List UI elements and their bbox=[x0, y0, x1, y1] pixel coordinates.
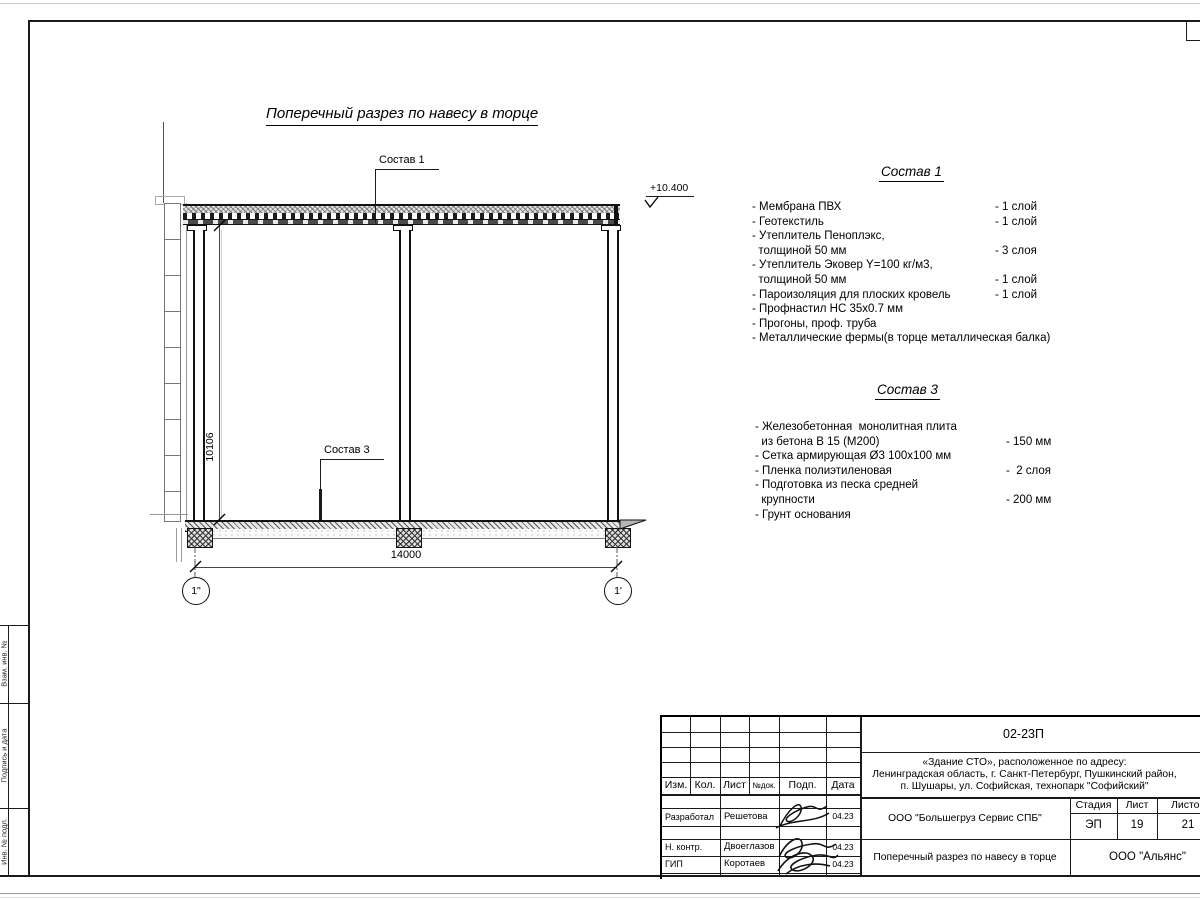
stamp-object-line3: п. Шушары, ул. Софийская, технопарк "Соф… bbox=[900, 781, 1148, 793]
drawing-title: Поперечный разрез по навесу в торце bbox=[266, 105, 538, 126]
sostav3-list: - Железобетонная монолитная плита из бет… bbox=[755, 420, 1095, 522]
callout-roof-underline bbox=[375, 169, 439, 170]
stamp-stage-value: ЭП bbox=[1070, 813, 1117, 839]
wall-edge-line bbox=[186, 203, 187, 520]
paper-edge-top bbox=[0, 3, 1200, 4]
spec-item-name: - Сетка армирующая Ø3 100x100 мм bbox=[755, 450, 951, 462]
wall-below-grade-1 bbox=[176, 528, 177, 562]
spec-item-name: - Геотекстиль bbox=[752, 216, 824, 228]
elevation-value: +10.400 bbox=[650, 182, 688, 194]
column-right bbox=[607, 230, 619, 520]
dim-height-text: 10106 bbox=[204, 425, 218, 469]
stamp-col-dok: №док. bbox=[749, 777, 779, 794]
spec-item-qty: - 1 слой bbox=[995, 200, 1037, 215]
side-label-vzam: Взам. инв. № bbox=[0, 629, 9, 699]
footing-right bbox=[605, 528, 631, 548]
frame-top bbox=[28, 20, 1200, 22]
stamp-doc-number: 02-23П bbox=[860, 717, 1187, 752]
corner-box-bottom bbox=[1186, 40, 1200, 41]
stamp-sheet-label: Лист bbox=[1117, 797, 1157, 813]
spec-item-qty: - 3 слоя bbox=[995, 244, 1037, 259]
side-label-inv: Инв. № подл. bbox=[0, 807, 9, 877]
spec-item-name: - Железобетонная монолитная плита bbox=[755, 421, 957, 433]
spec-row: из бетона В 15 (М200)- 150 мм bbox=[755, 435, 1095, 450]
spec-row: - Геотекстиль- 1 слой bbox=[752, 215, 1092, 230]
spec-item-name: крупности bbox=[755, 494, 815, 506]
axis-right-label: 1' bbox=[614, 585, 622, 597]
spec-row: - Грунт основания bbox=[755, 508, 1095, 523]
stamp-line bbox=[779, 717, 780, 877]
stamp-line bbox=[662, 826, 860, 827]
stamp-date-developer: 04.23 bbox=[826, 808, 860, 826]
stamp-sheet-title: Поперечный разрез по навесу в торце bbox=[860, 839, 1070, 877]
wall-below-grade-2 bbox=[181, 528, 182, 562]
spec-item-name: толщиной 50 мм bbox=[752, 245, 846, 257]
spec-item-name: - Профнастил НС 35x0.7 мм bbox=[752, 303, 903, 315]
spec-item-qty: - 1 слой bbox=[995, 273, 1037, 288]
stamp-role-ncontrol: Н. контр. bbox=[665, 839, 720, 856]
stamp-name-ncontrol: Двоеглазов bbox=[724, 839, 779, 856]
spec-row: толщиной 50 мм- 1 слой bbox=[752, 273, 1092, 288]
stamp-object-line1: «Здание СТО», расположенное по адресу: bbox=[922, 757, 1126, 769]
stamp-sheet-value: 19 bbox=[1117, 813, 1157, 839]
spec-row: - Утеплитель Пеноплэкс, bbox=[752, 229, 1092, 244]
dim-width-text: 14000 bbox=[368, 549, 444, 561]
axis-bubble-left: 1" bbox=[182, 577, 210, 605]
spec-item-qty: - 2 слоя bbox=[1006, 464, 1051, 479]
spec-row: - Пароизоляция для плоских кровель- 1 сл… bbox=[752, 288, 1092, 303]
stamp-col-kol: Кол. bbox=[690, 777, 720, 794]
paper-edge-bottom bbox=[0, 893, 1200, 894]
spec-row: - Металлические фермы(в торце металличес… bbox=[752, 331, 1092, 346]
stamp-date-ncontrol: 04.23 bbox=[826, 839, 860, 856]
callout-slab-leader-thick bbox=[319, 489, 322, 520]
margin-divider-2 bbox=[0, 703, 28, 704]
footing-middle bbox=[396, 528, 422, 548]
spec-item-name: - Утеплитель Пеноплэкс, bbox=[752, 230, 885, 242]
elevation-arrow-icon bbox=[645, 197, 658, 207]
sostav3-heading: Состав 3 bbox=[875, 382, 940, 400]
spec-row: - Профнастил НС 35x0.7 мм bbox=[752, 302, 1092, 317]
spec-item-name: - Металлические фермы(в торце металличес… bbox=[752, 332, 1050, 344]
column-middle bbox=[399, 230, 411, 520]
spec-row: - Железобетонная монолитная плита bbox=[755, 420, 1095, 435]
spec-item-name: из бетона В 15 (М200) bbox=[755, 436, 880, 448]
side-label-podpis: Подпись и дата bbox=[0, 716, 9, 796]
column-left bbox=[193, 230, 205, 520]
stamp-sheets-value: 21 bbox=[1157, 813, 1200, 839]
stamp-col-list: Лист bbox=[720, 777, 749, 794]
sostav1-heading: Состав 1 bbox=[879, 164, 944, 182]
axis-left-label: 1" bbox=[191, 585, 201, 597]
dim-width-line bbox=[195, 567, 617, 568]
stamp-line bbox=[662, 732, 860, 733]
stamp-line bbox=[662, 747, 860, 748]
spec-row: толщиной 50 мм- 3 слоя bbox=[752, 244, 1092, 259]
stamp-line bbox=[662, 873, 860, 874]
spec-row: - Сетка армирующая Ø3 100x100 мм bbox=[755, 449, 1095, 464]
spec-row: - Подготовка из песка средней bbox=[755, 478, 1095, 493]
margin-divider-1 bbox=[0, 625, 28, 626]
spec-item-name: - Грунт основания bbox=[755, 509, 851, 521]
spec-item-name: - Мембрана ПВХ bbox=[752, 201, 841, 213]
stamp-object-address: «Здание СТО», расположенное по адресу: Л… bbox=[862, 753, 1187, 797]
spec-item-qty: - 1 слой bbox=[995, 215, 1037, 230]
drawing-sheet: Взам. инв. № Подпись и дата Инв. № подл.… bbox=[0, 0, 1200, 900]
spec-row: крупности- 200 мм bbox=[755, 493, 1095, 508]
roof-deck-dashes bbox=[183, 213, 620, 220]
stamp-col-izm: Изм. bbox=[662, 777, 690, 794]
stamp-line bbox=[662, 794, 860, 796]
stamp-sheets-label: Листов bbox=[1157, 797, 1200, 813]
stamp-company: ООО "Большегруз Сервис СПБ" bbox=[860, 799, 1070, 839]
spec-item-name: - Подготовка из песка средней bbox=[755, 479, 918, 491]
callout-slab-label: Состав 3 bbox=[324, 444, 370, 456]
existing-wall-line bbox=[163, 122, 164, 203]
stamp-stage-label: Стадия bbox=[1070, 797, 1117, 813]
corner-box-left bbox=[1186, 20, 1187, 40]
existing-wall-panels bbox=[164, 203, 181, 522]
spec-item-name: - Прогоны, проф. труба bbox=[752, 318, 876, 330]
spec-item-qty: - 1 слой bbox=[995, 288, 1037, 303]
spec-row: - Прогоны, проф. труба bbox=[752, 317, 1092, 332]
stamp-name-gip: Коротаев bbox=[724, 856, 779, 873]
stamp-date-gip: 04.23 bbox=[826, 856, 860, 873]
dim-height-line bbox=[219, 226, 220, 520]
spec-item-qty: - 150 мм bbox=[1006, 435, 1051, 450]
stamp-org: ООО "Альянс" bbox=[1070, 839, 1200, 877]
sostav1-list: - Мембрана ПВХ- 1 слой - Геотекстиль- 1 … bbox=[752, 200, 1092, 346]
spec-item-name: - Утеплитель Эковер Y=100 кг/м3, bbox=[752, 259, 933, 271]
ground-step-line bbox=[150, 514, 188, 515]
stamp-role-developer: Разработал bbox=[665, 808, 720, 826]
spec-row: - Мембрана ПВХ- 1 слой bbox=[752, 200, 1092, 215]
frame-left bbox=[28, 20, 30, 877]
callout-roof-leader bbox=[375, 169, 376, 223]
spec-item-name: толщиной 50 мм bbox=[752, 274, 846, 286]
axis-bubble-right: 1' bbox=[604, 577, 632, 605]
spec-item-qty: - 200 мм bbox=[1006, 493, 1051, 508]
callout-roof-label: Состав 1 bbox=[379, 154, 425, 166]
stamp-line bbox=[720, 717, 721, 877]
stamp-col-podp: Подп. bbox=[779, 777, 826, 794]
stamp-role-gip: ГИП bbox=[665, 856, 720, 873]
paper-shadow-bottom bbox=[0, 897, 1200, 898]
callout-slab-underline bbox=[320, 459, 384, 460]
spec-item-name: - Пароизоляция для плоских кровель bbox=[752, 289, 951, 301]
title-block: Изм. Кол. Лист №док. Подп. Дата Разработ… bbox=[660, 715, 1200, 879]
stamp-name-developer: Решетова bbox=[724, 808, 779, 826]
construction-line bbox=[221, 230, 222, 518]
footing-left bbox=[187, 528, 213, 548]
spec-item-name: - Пленка полиэтиленовая bbox=[755, 465, 892, 477]
spec-row: - Пленка полиэтиленовая- 2 слоя bbox=[755, 464, 1095, 479]
stamp-object-line2: Ленинградская область, г. Санкт-Петербур… bbox=[872, 769, 1176, 781]
callout-slab-leader bbox=[320, 459, 321, 489]
stamp-line bbox=[662, 762, 860, 763]
spec-row: - Утеплитель Эковер Y=100 кг/м3, bbox=[752, 258, 1092, 273]
elevation-underline bbox=[646, 196, 694, 197]
stamp-col-data: Дата bbox=[826, 777, 860, 794]
